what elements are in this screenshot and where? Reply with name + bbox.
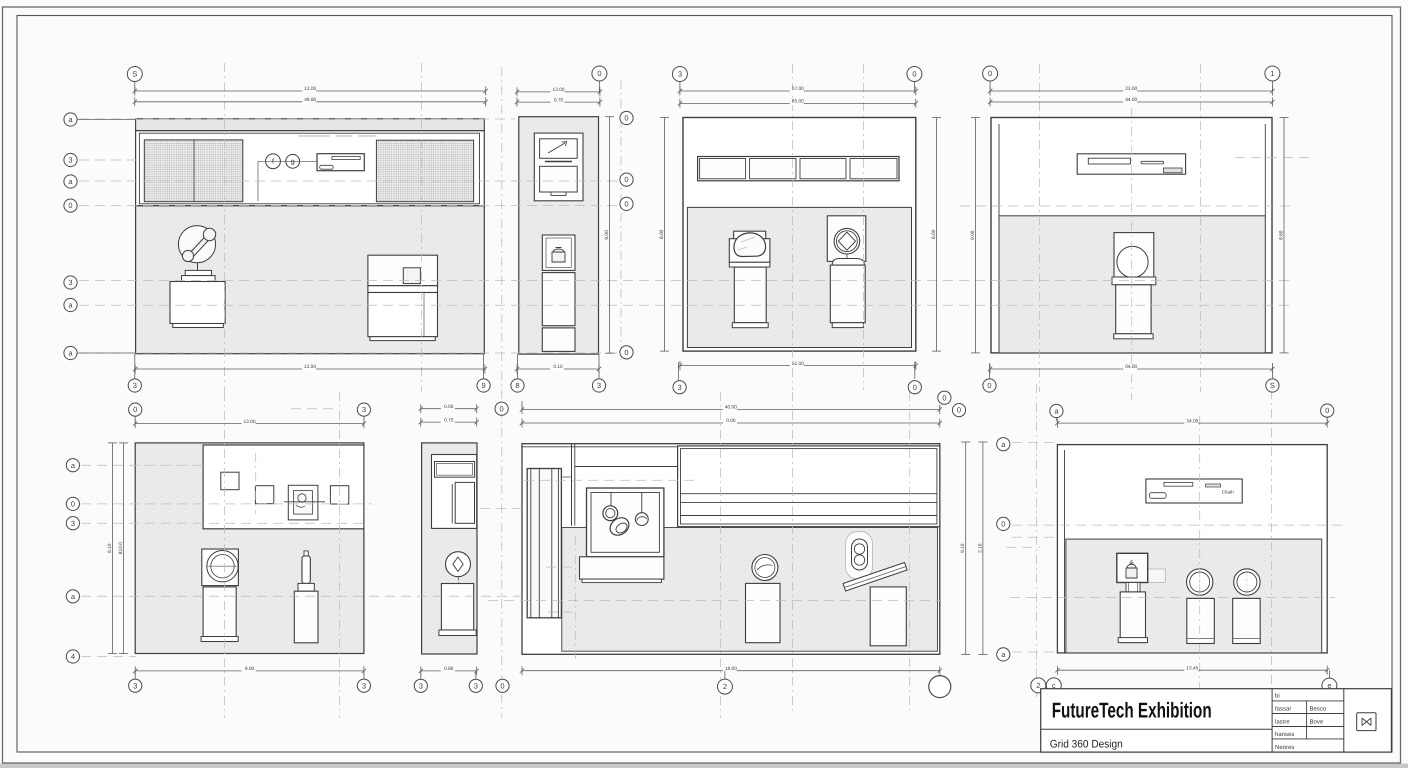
- svg-text:8.10: 8.10: [107, 543, 113, 553]
- svg-text:3: 3: [68, 278, 72, 287]
- svg-text:0: 0: [942, 393, 946, 402]
- svg-text:85.00: 85.00: [792, 99, 804, 105]
- svg-text:0: 0: [988, 69, 992, 78]
- svg-text:4: 4: [71, 652, 75, 661]
- svg-text:3: 3: [678, 383, 682, 392]
- svg-text:13.45: 13.45: [1186, 665, 1198, 671]
- svg-text:40.00: 40.00: [725, 405, 737, 411]
- svg-text:51.00: 51.00: [792, 361, 804, 367]
- svg-text:3: 3: [419, 681, 423, 690]
- svg-text:lastre: lastre: [1275, 719, 1290, 726]
- svg-text:3: 3: [362, 405, 366, 414]
- svg-text:3: 3: [362, 681, 366, 690]
- svg-text:23.00: 23.00: [1125, 86, 1137, 92]
- svg-text:0.00: 0.00: [726, 418, 736, 424]
- svg-text:FutureTech Exhibition: FutureTech Exhibition: [1052, 699, 1212, 723]
- svg-text:hanses: hanses: [1275, 731, 1294, 738]
- svg-text:07.00: 07.00: [792, 86, 804, 92]
- svg-text:18.00: 18.00: [725, 666, 737, 672]
- svg-text:0.70: 0.70: [554, 97, 564, 103]
- svg-text:3: 3: [68, 156, 72, 165]
- svg-text:0.70: 0.70: [444, 417, 454, 423]
- svg-text:Besco: Besco: [1310, 706, 1327, 713]
- svg-text:0: 0: [597, 69, 601, 78]
- svg-text:8: 8: [515, 381, 519, 390]
- svg-text:13.00: 13.00: [304, 364, 316, 370]
- svg-text:0: 0: [957, 406, 961, 415]
- svg-text:0: 0: [987, 381, 991, 390]
- svg-text:3: 3: [597, 381, 601, 390]
- svg-text:Bove: Bove: [1310, 719, 1324, 726]
- svg-text:0: 0: [71, 500, 75, 509]
- svg-text:13.00: 13.00: [243, 419, 255, 425]
- svg-text:8.80: 8.80: [1279, 230, 1285, 240]
- svg-text:bi: bi: [1275, 693, 1280, 700]
- svg-text:9.10: 9.10: [960, 543, 966, 553]
- svg-text:0: 0: [912, 70, 916, 79]
- svg-text:0: 0: [913, 383, 917, 392]
- svg-text:49.80: 49.80: [304, 97, 316, 103]
- svg-text:9.00: 9.00: [245, 666, 255, 672]
- svg-text:0: 0: [133, 405, 137, 414]
- svg-text:8.00: 8.00: [604, 230, 610, 240]
- svg-text:3: 3: [71, 519, 75, 528]
- svg-text:9.00: 9.00: [970, 230, 976, 240]
- svg-text:0: 0: [624, 200, 628, 209]
- svg-text:9: 9: [482, 381, 486, 390]
- svg-text:2: 2: [723, 682, 727, 691]
- svg-text:1: 1: [1270, 69, 1274, 78]
- svg-text:2.10: 2.10: [977, 543, 983, 553]
- svg-text:8.00: 8.00: [659, 229, 665, 239]
- svg-text:3: 3: [133, 681, 137, 690]
- svg-text:0.10: 0.10: [553, 364, 563, 370]
- svg-text:0: 0: [624, 348, 628, 357]
- svg-text:13.00: 13.00: [304, 86, 316, 92]
- svg-text:3: 3: [133, 381, 137, 390]
- svg-text:0: 0: [1001, 520, 1005, 529]
- svg-text:04.00: 04.00: [1125, 364, 1137, 370]
- svg-text:8.00: 8.00: [931, 229, 937, 239]
- svg-text:3: 3: [678, 70, 682, 79]
- svg-text:0.80: 0.80: [444, 666, 454, 672]
- svg-text:44.00: 44.00: [1125, 97, 1137, 103]
- svg-text:S: S: [1270, 381, 1275, 390]
- svg-text:C6ath: C6ath: [1222, 490, 1235, 495]
- svg-text:0: 0: [624, 114, 628, 123]
- svg-text:Grid 360 Design: Grid 360 Design: [1050, 739, 1123, 751]
- svg-text:34.00: 34.00: [1186, 418, 1198, 424]
- svg-text:0: 0: [68, 201, 72, 210]
- svg-text:Neores: Neores: [1275, 744, 1294, 751]
- svg-text:0: 0: [500, 404, 504, 413]
- svg-text:fassar: fassar: [1275, 706, 1291, 713]
- svg-text:0: 0: [624, 175, 628, 184]
- svg-text:g: g: [291, 159, 295, 166]
- svg-text:S: S: [132, 70, 137, 79]
- svg-text:0: 0: [1325, 406, 1329, 415]
- svg-text:810.0: 810.0: [118, 542, 124, 554]
- svg-text:13.00: 13.00: [552, 87, 564, 93]
- svg-text:0: 0: [500, 681, 504, 690]
- svg-text:2: 2: [1036, 681, 1040, 690]
- svg-text:0.00: 0.00: [444, 404, 454, 410]
- svg-text:3: 3: [474, 681, 478, 690]
